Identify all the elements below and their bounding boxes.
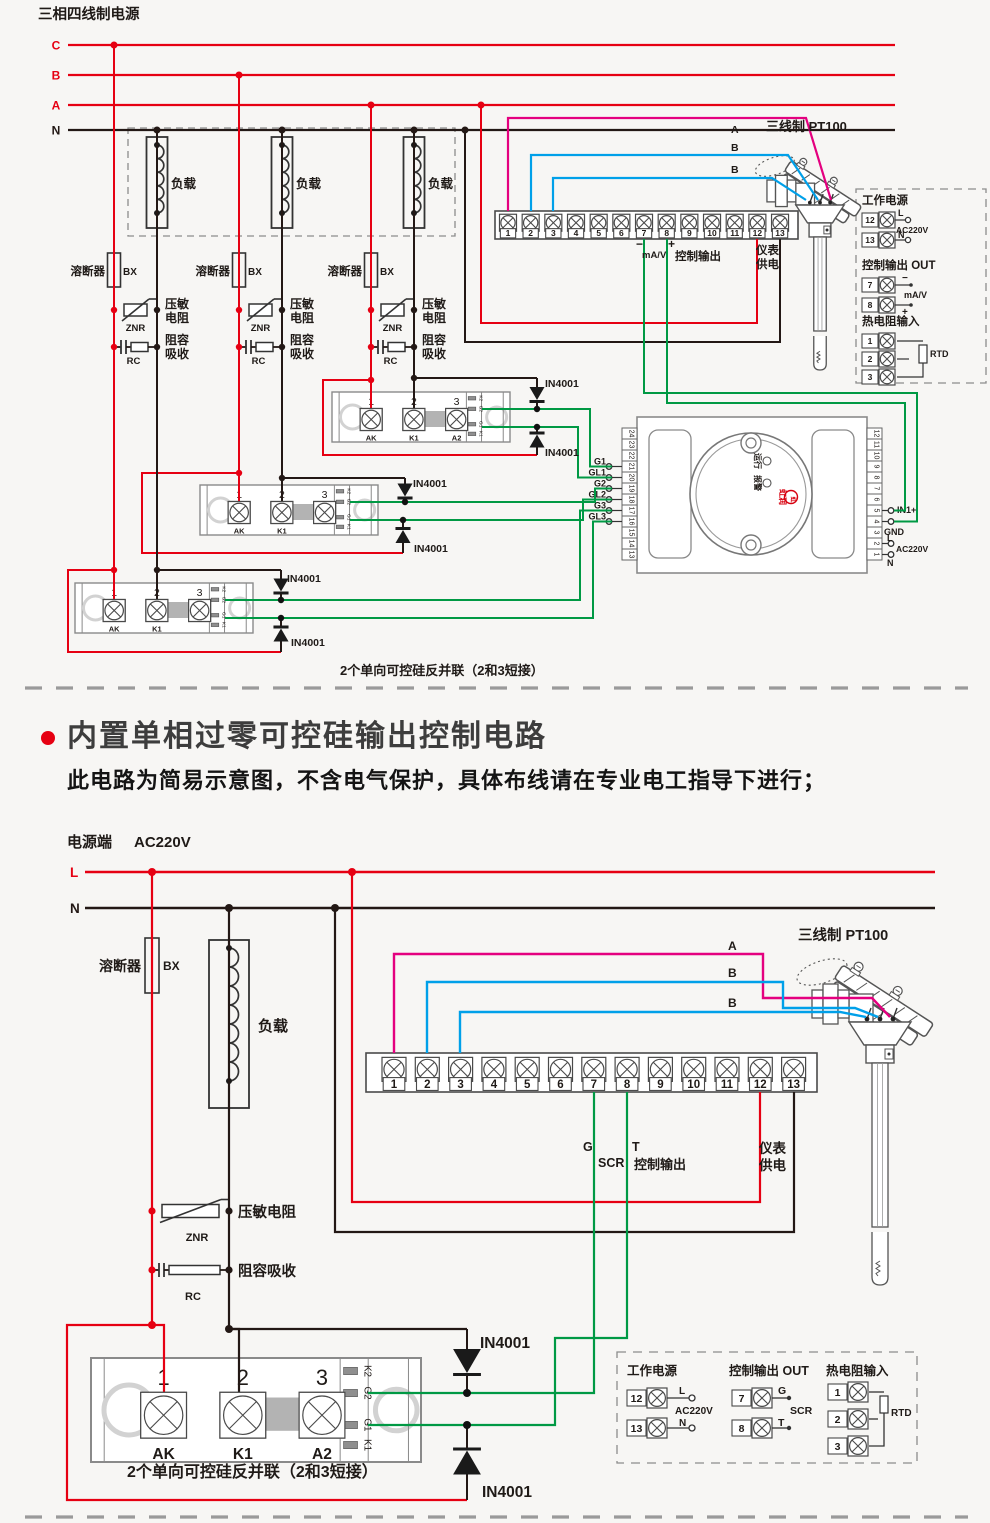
gate-strip-label: K2 — [345, 488, 351, 494]
junction-dot — [148, 868, 156, 876]
junction-dot — [331, 904, 339, 912]
sensor-wire-label: B — [728, 996, 737, 1010]
varistor-symbol — [122, 299, 156, 321]
block-t: T — [632, 1140, 640, 1154]
panel-title: 控制输出 OUT — [729, 1363, 809, 1378]
sensor-wire-label: B — [731, 164, 739, 176]
load-label: 负载 — [258, 1017, 288, 1035]
module-terminal-name: AK — [234, 527, 245, 536]
controller-terminal-number: 6 — [873, 498, 880, 502]
block-meter: 仪表 — [758, 1140, 787, 1156]
junction-dot — [909, 303, 913, 307]
controller-terminal-number: 9 — [873, 465, 880, 469]
rc-label: 吸收 — [165, 346, 189, 361]
diode-in4001 — [395, 520, 410, 553]
top-diagram-title: 三相四线制电源 — [38, 7, 140, 24]
junction-dot — [463, 1421, 471, 1429]
scr-caption-top: 2个单向可控硅反并联（2和3短接） — [340, 664, 544, 679]
section-heading: 内置单相过零可控硅输出控制电路 — [67, 720, 547, 755]
diode-label: IN4001 — [545, 447, 579, 459]
junction-dot — [368, 377, 374, 383]
line-label: N — [70, 901, 80, 916]
screw-terminal — [879, 297, 895, 313]
module-terminal-number: 3 — [322, 489, 328, 501]
panel-title: 热电阻输入 — [826, 1363, 889, 1378]
screw-terminal — [220, 1392, 266, 1438]
junction-dot — [909, 283, 913, 287]
varistor-code: ZNR — [126, 323, 146, 334]
panel-n: N — [679, 1418, 686, 1429]
module-terminal-number: 3 — [316, 1365, 328, 1390]
wire — [427, 982, 878, 1053]
diode-in4001 — [529, 378, 544, 409]
line-label: L — [70, 865, 78, 880]
rc-code: RC — [252, 356, 266, 367]
diagram-canvas: CBAN负载溶断器BXZNR压敏电阻RC阻容吸收负载溶断器BXZNR压敏电阻RC… — [0, 0, 990, 1523]
rc-label: 阻容 — [290, 332, 314, 347]
scr-caption-bottom: 2个单向可控硅反并联（2和3短接） — [127, 1464, 378, 1482]
module-terminal-name: A2 — [452, 434, 462, 443]
rc-snubber-symbol — [114, 340, 157, 354]
controller-terminal-number: 8 — [873, 476, 880, 480]
varistor-label: 压敏 — [165, 296, 190, 311]
junction-dot — [400, 517, 406, 523]
run-led-label: 运行 — [753, 453, 763, 469]
module-terminal-name: K1 — [409, 434, 419, 443]
controller-terminal-number: 18 — [628, 496, 635, 504]
rc-label: 吸收 — [290, 346, 314, 361]
junction-dot — [411, 344, 417, 350]
pt100-sensor — [794, 954, 941, 1285]
load-label: 负载 — [171, 176, 197, 191]
wire — [152, 872, 164, 1416]
varistor-label: 压敏电阻 — [238, 1203, 296, 1221]
power-terminal-label: 电源端 — [67, 834, 112, 851]
junction-dot — [368, 307, 374, 313]
panel-terminal-number: 13 — [865, 235, 875, 245]
panel-terminal-number: 1 — [835, 1387, 841, 1399]
gate-wire-label: GL1 — [588, 468, 606, 478]
junction-dot — [111, 344, 117, 350]
controller-terminal-number: 19 — [628, 485, 635, 493]
terminal-number: 4 — [491, 1079, 498, 1091]
junction-dot — [411, 375, 417, 381]
pt100-label-bottom: 三线制 PT100 — [798, 928, 888, 945]
junction-dot — [225, 904, 233, 912]
controller-terminal-number: 1 — [873, 553, 880, 557]
fuse-code: BX — [248, 267, 262, 278]
varistor-label: 压敏 — [422, 296, 447, 311]
controller-terminal-number: 15 — [628, 529, 635, 537]
junction-dot — [279, 307, 285, 313]
terminal-number: 9 — [657, 1079, 663, 1091]
junction-dot — [111, 42, 118, 49]
terminal-circle — [888, 508, 894, 514]
block-g: G — [583, 1140, 593, 1154]
terminal-number: 5 — [524, 1079, 531, 1091]
load-label: 负载 — [428, 176, 454, 191]
block-meter: 供电 — [758, 1157, 787, 1173]
screw-terminal — [647, 1388, 667, 1408]
junction-dot — [278, 615, 284, 621]
junction-dot — [236, 72, 243, 79]
terminal-number: 1 — [506, 228, 511, 238]
module-terminal-number: 3 — [197, 587, 203, 599]
junction-dot — [154, 567, 160, 573]
panel-rtd: RTD — [891, 1408, 912, 1419]
panel-out-mid: SCR — [790, 1405, 813, 1417]
panel-terminal-number: 8 — [868, 300, 873, 310]
controller-terminal-number: 10 — [873, 452, 880, 460]
terminal-number: 12 — [754, 1079, 767, 1091]
screw-terminal — [879, 212, 895, 228]
screw-terminal — [228, 502, 250, 524]
screw-terminal — [103, 600, 125, 622]
rc-label: 吸收 — [422, 346, 446, 361]
panel-rtd: RTD — [930, 349, 949, 359]
junction-dot — [278, 597, 284, 603]
screw-terminal — [647, 1418, 667, 1438]
diode-in4001 — [529, 427, 544, 455]
junction-dot — [826, 228, 829, 231]
fuse-code: BX — [380, 267, 394, 278]
varistor-code: ZNR — [186, 1232, 209, 1244]
varistor-label: 电阻 — [422, 310, 446, 325]
section-note: 此电路为简易示意图，不含电气保护，具体布线请在专业电工指导下进行； — [67, 768, 826, 793]
junction-dot — [279, 127, 286, 134]
panel-terminal-number: 12 — [865, 215, 875, 225]
bottom-diagram: LN溶断器BX负载ZNR压敏电阻RC阻容吸收1AK2K13A2K2G2G1K11… — [67, 865, 940, 1501]
junction-dot — [236, 307, 242, 313]
panel-title: 工作电源 — [862, 193, 908, 207]
junction-dot — [368, 344, 374, 350]
controller-terminal-number: 23 — [628, 441, 635, 449]
varistor-label: 电阻 — [290, 310, 314, 325]
diode-in4001 — [397, 478, 412, 502]
module-terminal-name: K1 — [277, 527, 287, 536]
varistor-label: 压敏 — [290, 296, 315, 311]
terminal-detail-panel: 工作电源1213LAC220VN控制输出 OUT78GSCRT热电阻输入123R… — [617, 1352, 917, 1463]
controller-terminal-number: 14 — [628, 540, 635, 548]
screw-terminal — [879, 333, 895, 349]
gate-strip-label: K2 — [477, 395, 483, 401]
terminal-circle — [689, 1395, 695, 1401]
gate-wire-label: G2 — [594, 479, 606, 489]
terminal-number: 3 — [551, 228, 556, 238]
fuse-label: 溶断器 — [99, 958, 142, 974]
block-plus: + — [668, 237, 675, 251]
junction-dot — [111, 567, 117, 573]
junction-dot — [348, 868, 356, 876]
diode-label: IN4001 — [291, 637, 325, 649]
varistor-symbol — [160, 1200, 228, 1223]
junction-dot — [462, 127, 469, 134]
diode-label: IN4001 — [480, 1335, 530, 1352]
panel-title: 工作电源 — [627, 1363, 678, 1378]
panel-terminal-number: 7 — [739, 1393, 745, 1405]
controller-terminal-number: 12 — [873, 430, 880, 438]
block-scr: SCR — [598, 1156, 624, 1170]
controller-terminal-number: 2 — [873, 542, 880, 546]
panel-terminal-number: 13 — [631, 1423, 643, 1435]
terminal-circle — [905, 237, 910, 242]
section-bullet — [41, 731, 55, 745]
terminal-number: 2 — [528, 228, 533, 238]
wiring-diagram-page: CBAN负载溶断器BXZNR压敏电阻RC阻容吸收负载溶断器BXZNR压敏电阻RC… — [0, 0, 990, 1523]
panel-terminal-number: 7 — [868, 280, 873, 290]
junction-dot — [828, 201, 832, 205]
terminal-number: 6 — [557, 1079, 563, 1091]
junction-dot — [818, 201, 822, 205]
controller-terminal-number: 7 — [873, 487, 880, 491]
gate-wire-label: G1 — [594, 457, 606, 467]
junction-dot — [148, 1321, 156, 1329]
terminal-number: 7 — [591, 1079, 597, 1091]
rc-code: RC — [185, 1291, 201, 1303]
diode-in4001 — [453, 1329, 481, 1393]
panel-terminal-number: 1 — [868, 336, 873, 346]
fuse-label: 溶断器 — [71, 264, 106, 278]
fuse-code: BX — [163, 959, 180, 973]
rc-label: 阻容 — [422, 332, 446, 347]
terminal-detail-panel: 工作电源1213LAC220VN控制输出 OUT78−mA/V+热电阻输入123… — [856, 189, 986, 385]
pt100-label-top: 三线制 PT100 — [766, 120, 847, 135]
terminal-circle — [689, 1425, 695, 1431]
screw-terminal — [403, 409, 425, 431]
wire — [869, 1413, 884, 1446]
block-meter: 供电 — [755, 257, 779, 271]
panel-terminal-number: 3 — [835, 1441, 841, 1453]
junction-dot — [787, 1426, 791, 1430]
panel-n: N — [898, 230, 905, 240]
junction-dot — [402, 499, 408, 505]
junction-dot — [148, 1266, 155, 1273]
diode-label: IN4001 — [482, 1484, 532, 1501]
alarm-led-label: 报警 — [753, 475, 763, 491]
block-mav: mA/V — [642, 250, 667, 261]
diode-in4001 — [453, 1425, 481, 1500]
screw-terminal — [879, 232, 895, 248]
controller-terminal-number: 11 — [873, 441, 880, 448]
l-label: L — [887, 533, 893, 543]
panel-out-b: T — [778, 1417, 785, 1429]
junction-dot — [368, 102, 375, 109]
junction-dot — [888, 1053, 891, 1056]
controller-terminal-number: 3 — [873, 531, 880, 535]
diode-label: IN4001 — [414, 543, 448, 555]
controller-terminal-number: 21 — [628, 463, 635, 471]
gate-strip-label: K1 — [345, 524, 351, 530]
junction-dot — [808, 201, 812, 205]
module-terminal-name: AK — [152, 1446, 175, 1463]
block-minus: − — [636, 237, 643, 251]
diode-label: IN4001 — [545, 378, 579, 390]
phase-label: C — [52, 39, 61, 53]
terminal-circle — [888, 519, 894, 525]
junction-dot — [225, 1325, 233, 1333]
phase-label: N — [52, 124, 61, 138]
fuse-code: BX — [123, 267, 137, 278]
junction-dot — [891, 1017, 896, 1022]
varistor-code: ZNR — [251, 323, 271, 334]
panel-title: 控制输出 OUT — [862, 258, 935, 272]
gate-wire-label: GL3 — [588, 512, 606, 522]
junction-dot — [478, 102, 485, 109]
junction-dot — [154, 344, 160, 350]
terminal-number: 9 — [687, 228, 692, 238]
screw-terminal — [189, 600, 211, 622]
junction-dot — [111, 307, 117, 313]
screw-terminal — [848, 1382, 868, 1402]
rc-code: RC — [384, 356, 398, 367]
diode-label: IN4001 — [287, 573, 321, 585]
module-terminal-name: AK — [366, 434, 377, 443]
rc-snubber-symbol — [371, 340, 414, 354]
varistor-symbol — [379, 299, 413, 321]
controller-terminal-number: 13 — [628, 551, 635, 559]
controller-terminal-number: 24 — [628, 430, 635, 438]
controller-terminal-number: 16 — [628, 518, 635, 526]
phase-label: A — [52, 99, 61, 113]
panel-l: L — [898, 208, 904, 218]
terminal-number: 12 — [753, 228, 763, 238]
rc-code: RC — [127, 356, 141, 367]
panel-out-a: G — [778, 1385, 786, 1397]
controller-terminal-number: 22 — [628, 452, 635, 460]
terminal-number: 1 — [391, 1079, 398, 1091]
terminal-number: 3 — [457, 1079, 463, 1091]
terminal-number: 11 — [730, 228, 739, 238]
junction-dot — [236, 344, 242, 350]
terminal-number: 11 — [721, 1079, 734, 1091]
n-label: N — [887, 558, 894, 568]
diode-label: IN4001 — [413, 478, 447, 490]
block-meter: 仪表 — [755, 243, 779, 257]
panel-out-mid: mA/V — [904, 290, 927, 300]
panel-terminal-number: 2 — [868, 354, 873, 364]
junction-dot — [534, 406, 540, 412]
phase-label: B — [52, 69, 61, 83]
screw-terminal — [360, 409, 382, 431]
junction-dot — [411, 127, 418, 134]
brand-logo-glyph: 虹 — [789, 496, 797, 502]
wire — [460, 1012, 866, 1053]
terminal-number: 4 — [574, 228, 579, 238]
controller-terminal-number: 5 — [873, 509, 880, 513]
junction-dot — [154, 307, 160, 313]
controller-terminal-number: 17 — [628, 507, 635, 515]
fuse-label: 溶断器 — [328, 264, 363, 278]
screw-terminal — [752, 1418, 772, 1438]
diode-in4001 — [273, 618, 288, 652]
varistor-code: ZNR — [383, 323, 403, 334]
terminal-number: 5 — [596, 228, 601, 238]
gate-strip-label: K1 — [220, 622, 226, 628]
screw-terminal — [314, 502, 336, 524]
sensor-wire-label: A — [728, 939, 737, 953]
load-label: 负载 — [296, 176, 322, 191]
block-ctrl: 控制输出 — [634, 1157, 686, 1172]
screw-terminal — [848, 1436, 868, 1456]
terminal-number: 10 — [687, 1079, 700, 1091]
panel-ac: AC220V — [675, 1406, 713, 1417]
block-ctrl: 控制输出 — [675, 249, 721, 263]
wire — [352, 872, 760, 1202]
gate-strip-label: K1 — [361, 1439, 372, 1452]
power-voltage-label: AC220V — [134, 834, 191, 851]
junction-dot — [787, 1396, 791, 1400]
panel-title: 热电阻输入 — [862, 314, 920, 328]
sensor-wire-label: B — [731, 142, 739, 154]
terminal-number: 13 — [787, 1079, 800, 1091]
varistor-label: 电阻 — [165, 310, 189, 325]
module-terminal-name: K1 — [233, 1446, 253, 1463]
panel-terminal-number: 8 — [739, 1423, 745, 1435]
panel-terminal-number: 3 — [868, 372, 873, 382]
screw-terminal — [879, 277, 895, 293]
wire — [897, 363, 923, 377]
terminal-circle — [905, 217, 910, 222]
ac220v-label: AC220V — [896, 544, 928, 554]
gate-wire-label: GL2 — [588, 490, 606, 500]
junction-dot — [148, 1207, 155, 1214]
controller-terminal-number: 4 — [873, 520, 880, 524]
varistor-symbol — [247, 299, 281, 321]
module-terminal-name: AK — [109, 625, 120, 634]
terminal-block: 12345678910111213 — [495, 211, 798, 239]
rc-label: 阻容 — [165, 332, 189, 347]
sensor-wire-label: B — [728, 966, 737, 980]
module-terminal-number: 3 — [454, 396, 460, 408]
junction-dot — [154, 127, 161, 134]
junction-dot — [225, 1266, 232, 1273]
screw-terminal — [879, 369, 895, 385]
fuse-label: 溶断器 — [196, 264, 231, 278]
terminal-number: 6 — [619, 228, 624, 238]
junction-dot — [279, 344, 285, 350]
screw-terminal — [446, 409, 468, 431]
panel-terminal-number: 2 — [835, 1414, 841, 1426]
gate-strip-label: K2 — [220, 586, 226, 592]
screw-terminal — [879, 351, 895, 367]
rc-snubber-symbol — [239, 340, 282, 354]
junction-dot — [411, 307, 417, 313]
panel-terminal-number: 12 — [631, 1393, 643, 1405]
junction-dot — [878, 1017, 883, 1022]
screw-terminal — [146, 600, 168, 622]
panel-l: L — [679, 1386, 685, 1397]
terminal-number: 10 — [707, 228, 717, 238]
junction-dot — [463, 1389, 471, 1397]
screw-terminal — [141, 1392, 187, 1438]
gate-strip-label: K1 — [477, 431, 483, 437]
terminal-circle — [888, 552, 894, 558]
module-terminal-name: A2 — [312, 1446, 332, 1463]
terminal-number: 8 — [624, 1079, 631, 1091]
rc-label: 阻容吸收 — [238, 1262, 296, 1280]
junction-dot — [279, 475, 285, 481]
junction-dot — [534, 424, 540, 430]
screw-terminal — [848, 1409, 868, 1429]
junction-dot — [225, 1207, 232, 1214]
panel-out-a: − — [902, 273, 908, 284]
gate-strip-label: K2 — [361, 1365, 372, 1377]
terminal-number: 2 — [424, 1079, 430, 1091]
wire — [225, 522, 612, 619]
controller-terminal-number: 20 — [628, 474, 635, 482]
terminal-number: 13 — [775, 228, 785, 238]
screw-terminal — [299, 1392, 345, 1438]
